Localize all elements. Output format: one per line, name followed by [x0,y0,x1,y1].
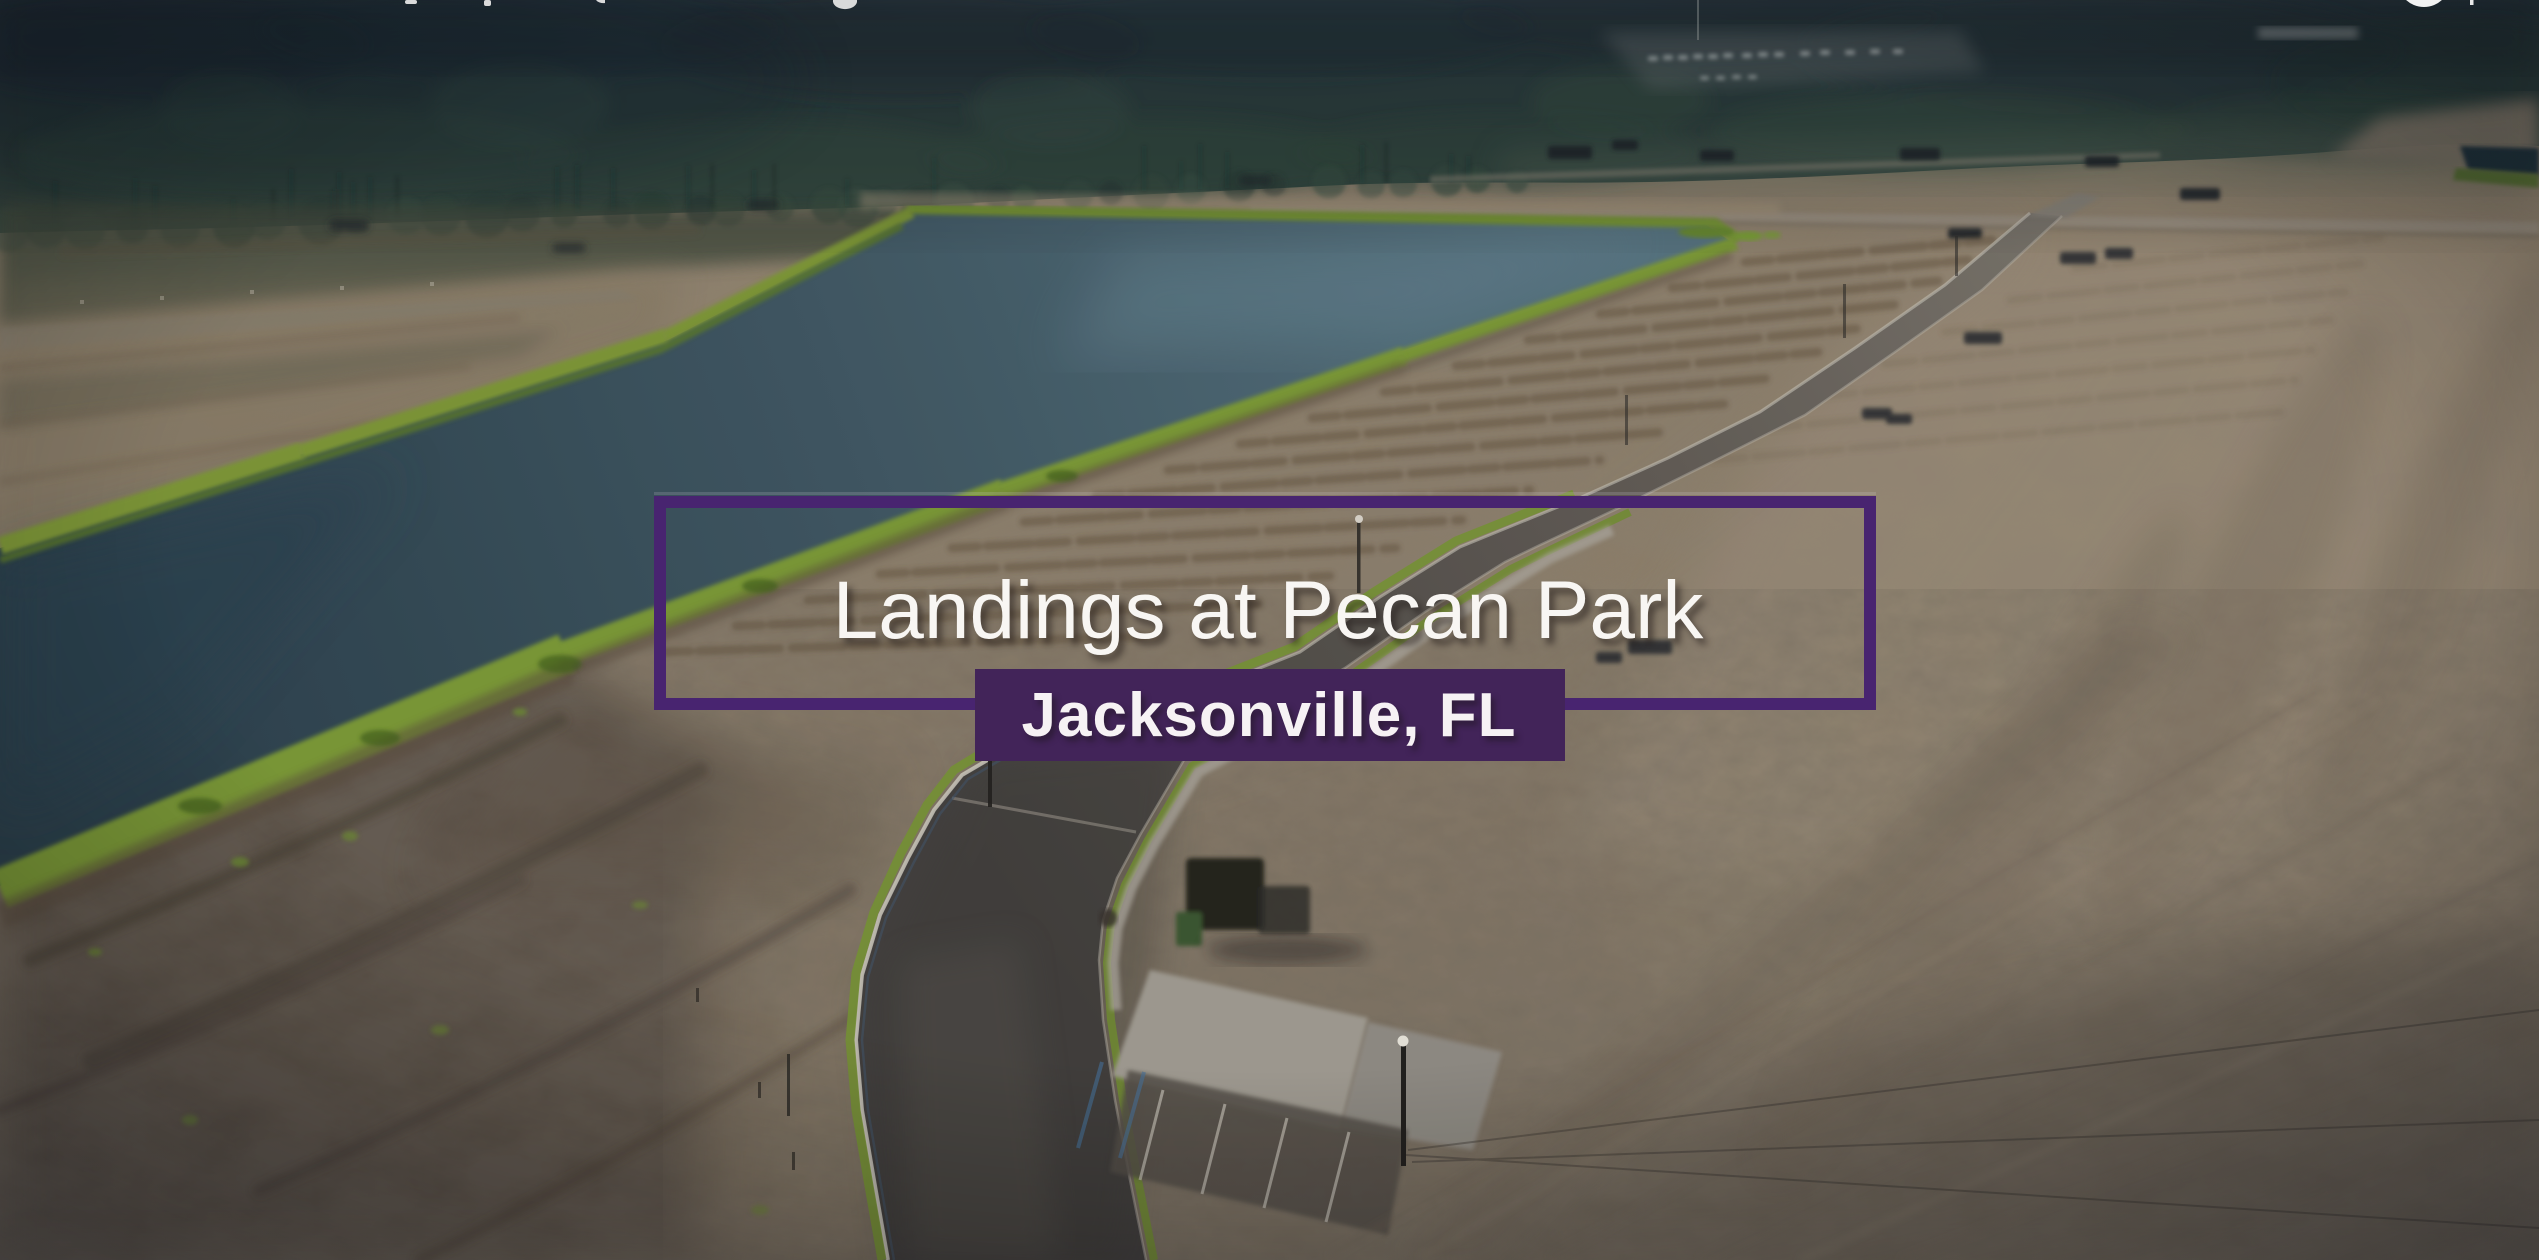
svg-text:Landings at Pecan Park: Landings at Pecan Park [833,565,1705,656]
svg-text:Jacksonville, FL: Jacksonville, FL [1022,681,1517,750]
